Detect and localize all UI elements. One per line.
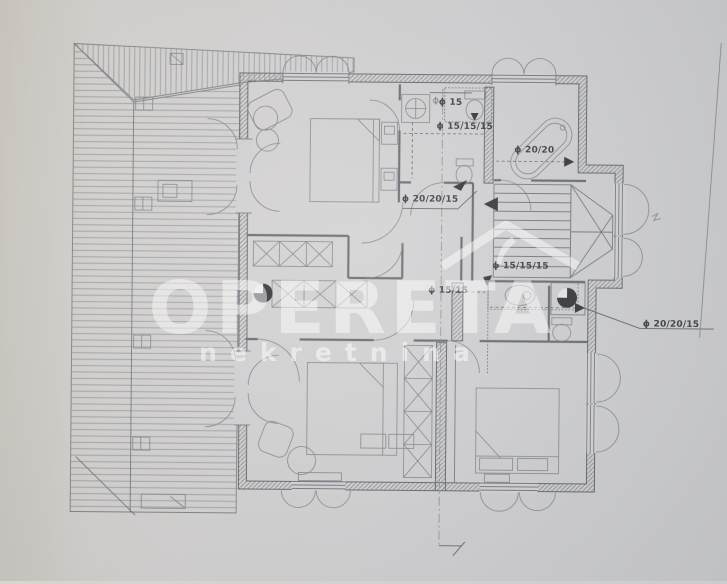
bedroom-bottom-left	[256, 344, 433, 478]
side-table-2	[287, 446, 315, 474]
drawing-sheet: ϕ 15 ϕ 15/15/15 ϕ 20/20 ϕ 20/20/15 ϕ 15/…	[0, 0, 727, 584]
floor-plan-drawing	[0, 0, 727, 584]
armchair	[245, 87, 295, 133]
label-pipe-dia-wc-stack: ϕ 15/15/15	[436, 122, 493, 132]
label-pipe-dia-wc-basin: ϕ 15	[439, 98, 463, 108]
toilet-3	[552, 318, 572, 325]
paper-edge	[700, 43, 722, 338]
bedroom-bottom-right	[475, 388, 559, 474]
corridor-wardrobes	[253, 241, 368, 308]
label-pipe-dia-right-stack: ϕ 20/20/15	[643, 319, 700, 329]
wardrobe-column	[403, 345, 432, 477]
label-pipe-dia-left-stack: ϕ 20/20/15	[402, 194, 459, 204]
washbasin-2	[505, 285, 535, 305]
toilet	[465, 91, 486, 99]
label-pipe-dia-shower: ϕ 15/15	[428, 286, 468, 296]
label-pipe-dia-bathtub: ϕ 20/20	[514, 145, 554, 155]
toilet-2	[456, 159, 473, 166]
side-table	[253, 106, 277, 130]
pencil-mark	[652, 214, 661, 221]
shower-room	[482, 275, 585, 374]
bed-2	[307, 363, 398, 456]
label-pipe-dia-shower-stack: ϕ 15/15/15	[492, 261, 549, 271]
bay-roof	[570, 185, 613, 278]
door-swings	[205, 99, 532, 430]
bedroom-top-left	[244, 86, 398, 202]
floor-plan-photo: ϕ 15 ϕ 15/15/15 ϕ 20/20 ϕ 20/20/15 ϕ 15/…	[0, 0, 727, 581]
stair-direction-arrow	[484, 197, 498, 211]
